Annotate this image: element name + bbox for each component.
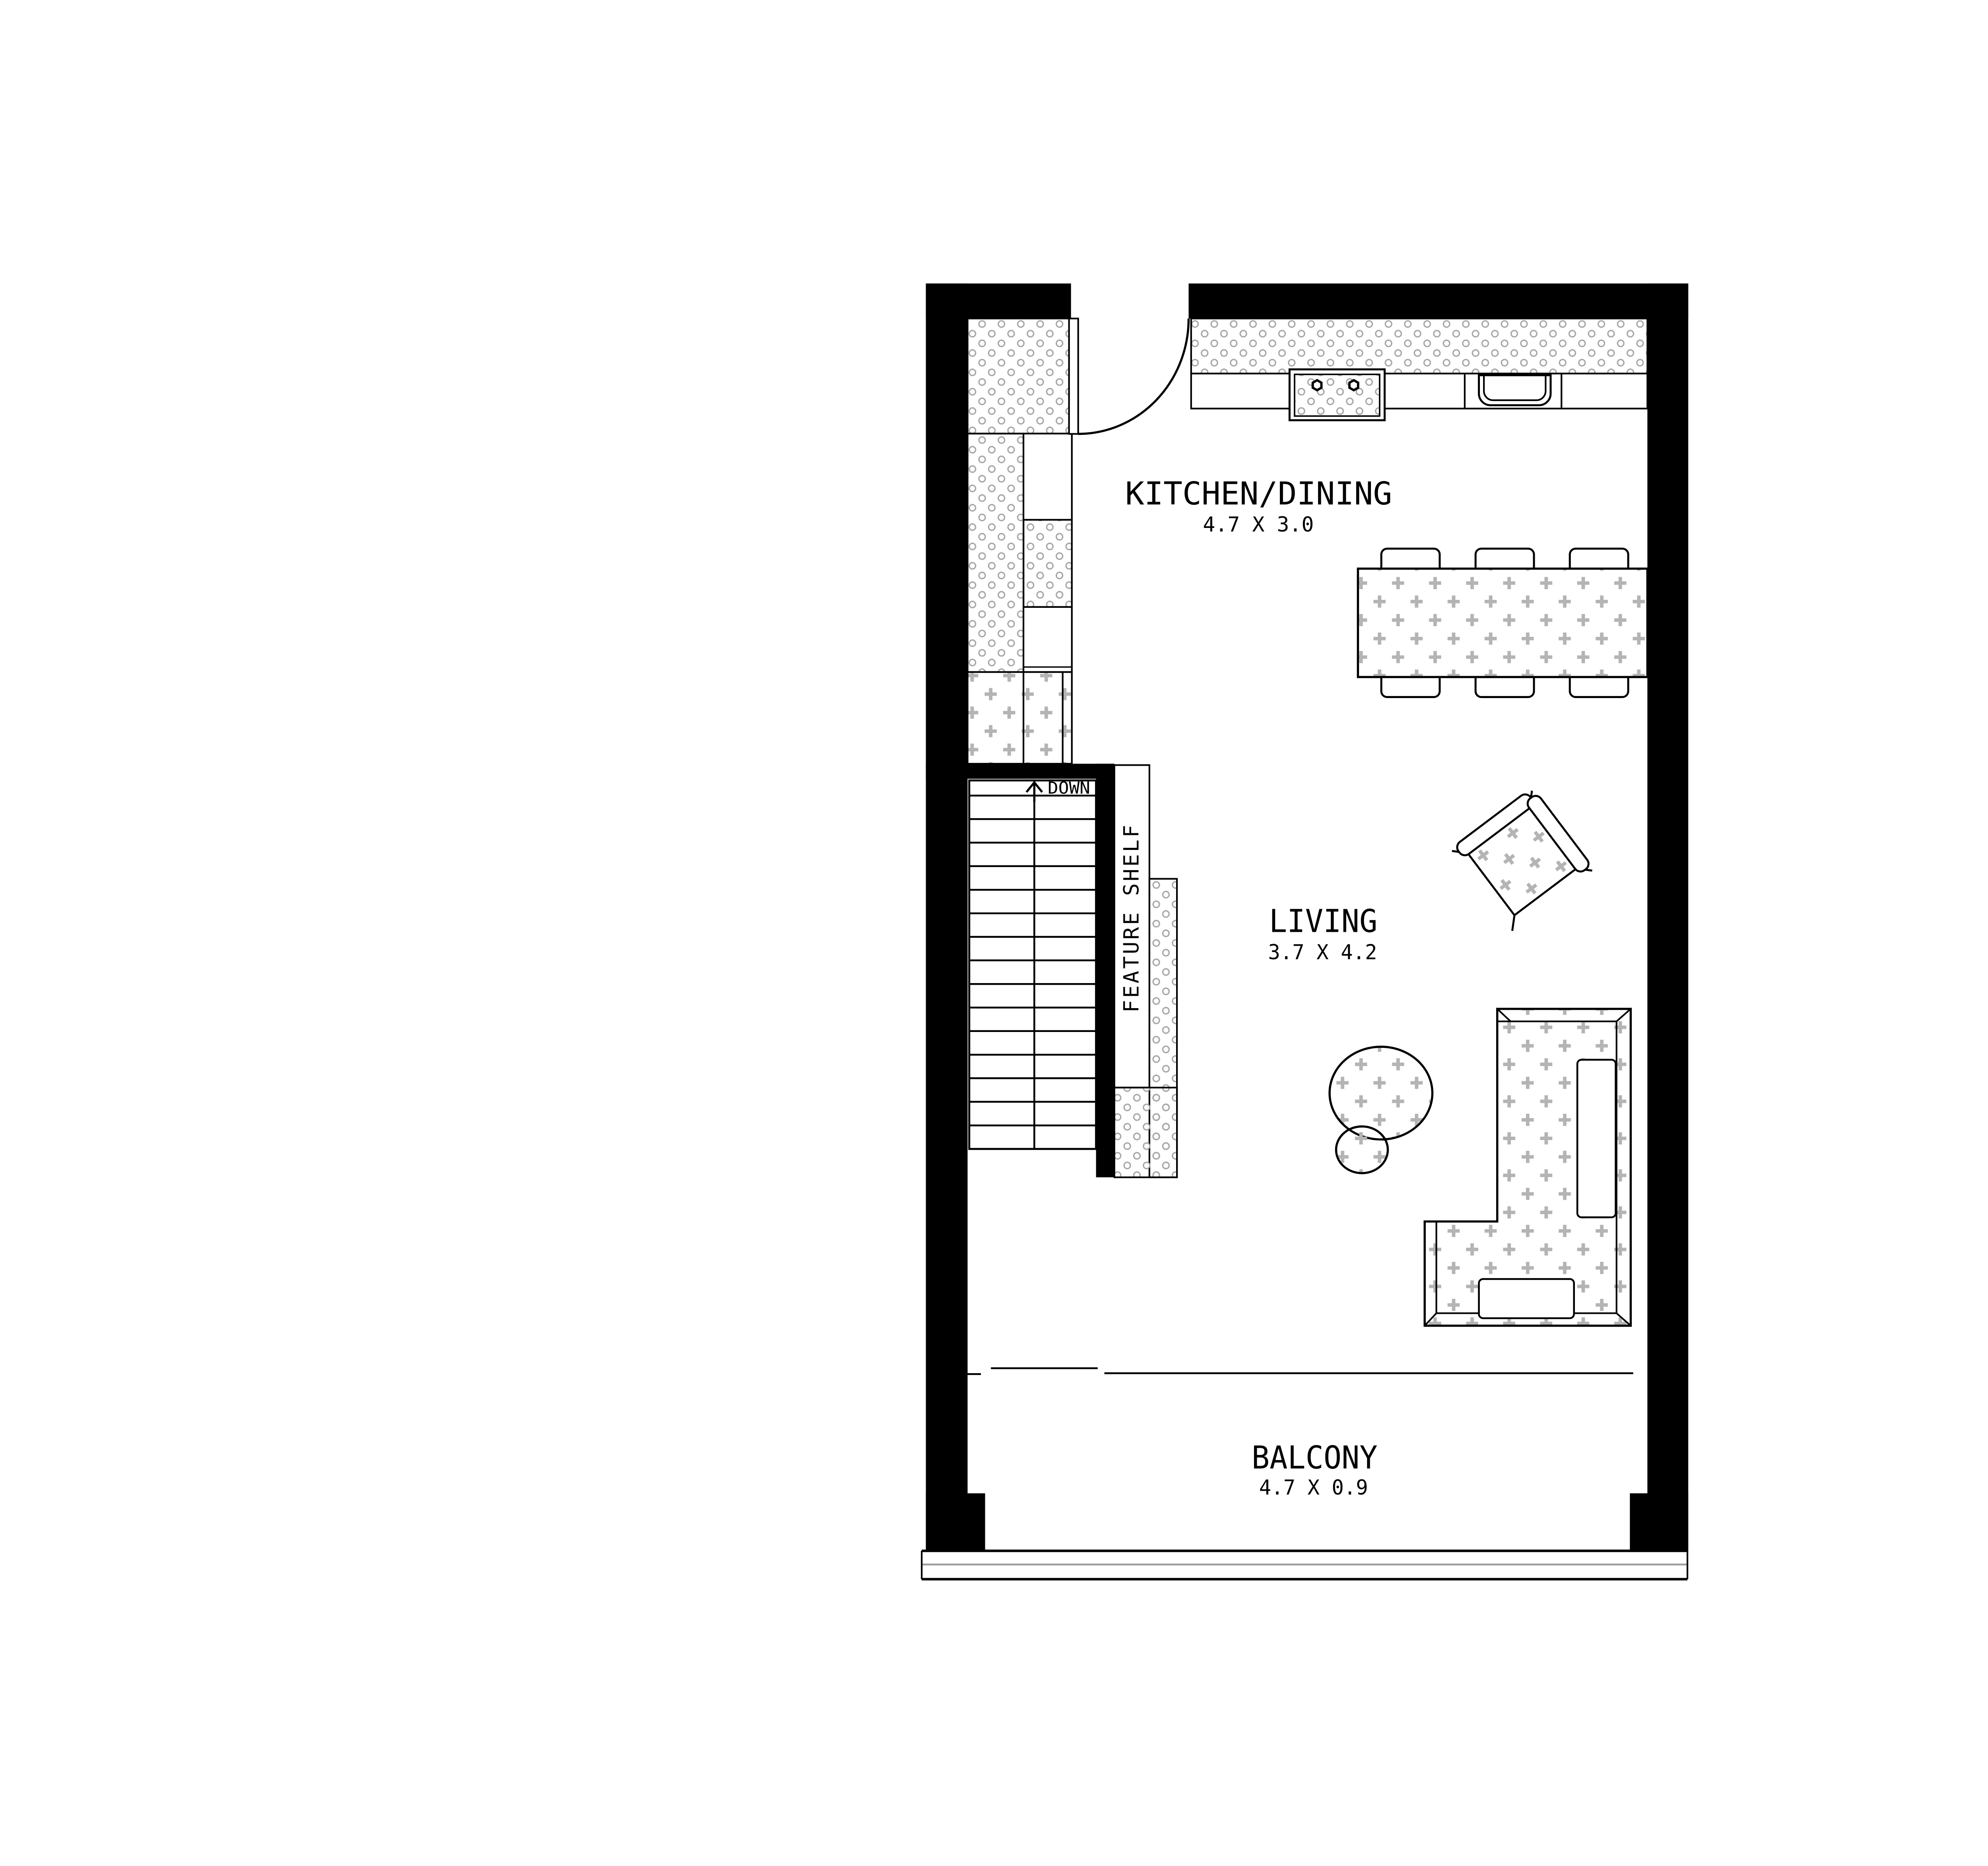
tall-cabinet [1023,434,1072,520]
room-dims-balcony: 4.7 X 0.9 [1259,1476,1368,1499]
page-canvas: DOWN FEATURE SHELF [0,0,1988,1866]
feature-shelf: FEATURE SHELF [1114,765,1177,1177]
entry-door-swing-arc [1078,318,1189,434]
room-title-kitchen-dining: KITCHEN/DINING [1125,475,1392,512]
stair-treads [969,780,1096,1149]
pantry-unit [968,672,1072,764]
wall-right [1647,283,1688,1551]
stairs: DOWN [969,778,1096,1149]
room-title-living: LIVING [1269,902,1378,939]
coffee-table-small [1336,1127,1388,1173]
pillar-left [926,1493,985,1551]
armchair [1450,787,1594,931]
sofa-cushion [1479,1279,1574,1318]
dining-set [1358,549,1647,697]
kitchen-left-cabinets [968,318,1072,764]
sofa [1425,1009,1631,1326]
wall-top-right [1189,283,1689,318]
kitchen-cabinet-row [1191,374,1648,409]
wall-stair-top [926,764,1114,779]
wall-stair-right [1096,764,1114,1177]
feature-shelf-base [1114,1088,1177,1177]
room-dims-living: 3.7 X 4.2 [1268,941,1377,964]
entry-door [1069,318,1189,434]
kitchen-counter-top [1191,318,1648,373]
stove [1289,369,1384,420]
kitchen-sink [1479,375,1551,405]
stair-direction-label: DOWN [1048,778,1090,798]
floor-plan: DOWN FEATURE SHELF [0,0,1988,1866]
coffee-table-large [1330,1047,1432,1139]
sofa-cushion [1577,1060,1616,1217]
fridge [1023,607,1072,672]
wall-left [926,283,968,1551]
room-dims-kitchen-dining: 4.7 X 3.0 [1203,513,1314,537]
stove-knob [1313,380,1322,390]
entry-door-leaf [1069,318,1078,434]
balcony-sliding-door [943,1368,1633,1374]
pillar-right [1630,1493,1688,1551]
room-title-balcony: BALCONY [1252,1439,1378,1476]
dining-table [1358,568,1647,677]
stove-knob [1349,380,1358,390]
